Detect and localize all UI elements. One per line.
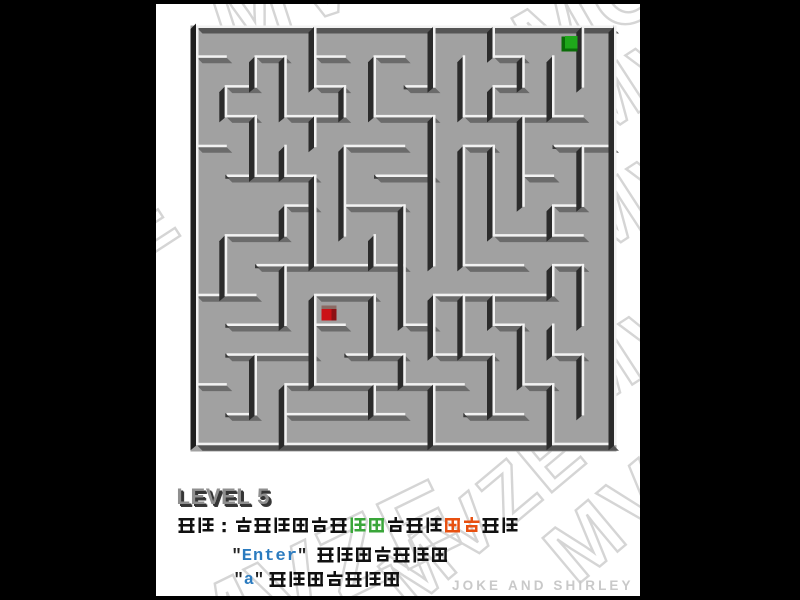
svg-text:MVZE: MVZE: [156, 168, 197, 385]
